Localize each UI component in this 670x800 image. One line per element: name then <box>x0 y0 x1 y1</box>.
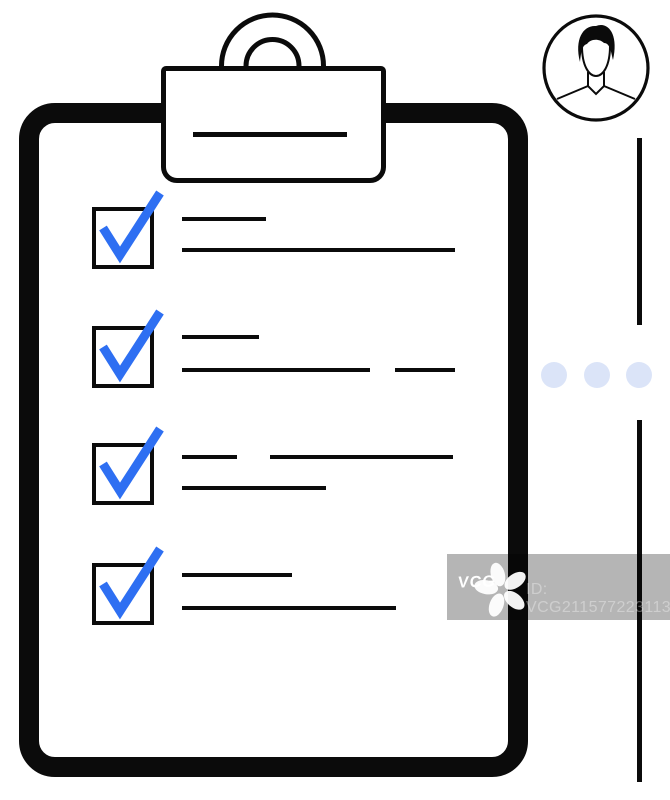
clip-label-line <box>193 132 347 137</box>
divider-line-segment <box>637 138 642 325</box>
checkmark-icon <box>85 182 170 277</box>
dot <box>541 362 567 388</box>
clipboard-clip <box>161 66 386 183</box>
text-placeholder-line <box>270 455 453 459</box>
dot <box>626 362 652 388</box>
watermark-id-text: ID: VCG211577223113 <box>526 581 670 617</box>
text-placeholder-line <box>182 455 237 459</box>
vcg-flower-icon <box>478 557 530 617</box>
text-placeholder-line <box>182 486 326 490</box>
text-placeholder-line <box>182 368 370 372</box>
checkmark-icon <box>85 418 170 513</box>
person-avatar-icon <box>541 12 651 124</box>
text-placeholder-line <box>395 368 455 372</box>
text-placeholder-line <box>182 573 292 577</box>
checkmark-icon <box>85 538 170 633</box>
stock-illustration-canvas: VCG ID: VCG211577223113 <box>0 0 670 800</box>
text-placeholder-line <box>182 217 266 221</box>
text-placeholder-line <box>182 606 396 610</box>
clip-ring-icon <box>214 8 331 66</box>
text-placeholder-line <box>182 335 259 339</box>
dot <box>584 362 610 388</box>
text-placeholder-line <box>182 248 455 252</box>
checkmark-icon <box>85 301 170 396</box>
